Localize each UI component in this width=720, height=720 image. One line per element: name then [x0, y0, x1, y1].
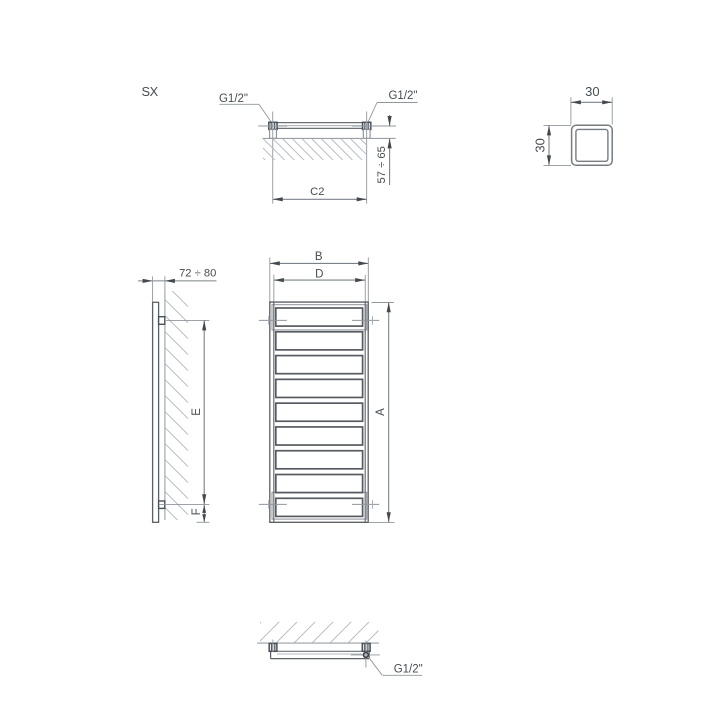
svg-text:A: A [375, 408, 387, 416]
svg-text:G1/2": G1/2" [394, 664, 423, 676]
svg-text:B: B [315, 251, 323, 263]
svg-text:E: E [191, 408, 203, 416]
svg-text:30: 30 [585, 84, 599, 99]
svg-text:F: F [191, 508, 203, 515]
svg-text:G1/2": G1/2" [388, 90, 417, 102]
svg-text:72 ÷ 80: 72 ÷ 80 [179, 268, 216, 280]
svg-text:G1/2": G1/2" [219, 93, 248, 105]
svg-text:30: 30 [533, 138, 548, 152]
svg-text:D: D [315, 269, 323, 281]
svg-text:57 ÷ 65: 57 ÷ 65 [376, 146, 388, 183]
svg-text:C2: C2 [310, 186, 324, 198]
svg-text:SX: SX [142, 84, 159, 99]
